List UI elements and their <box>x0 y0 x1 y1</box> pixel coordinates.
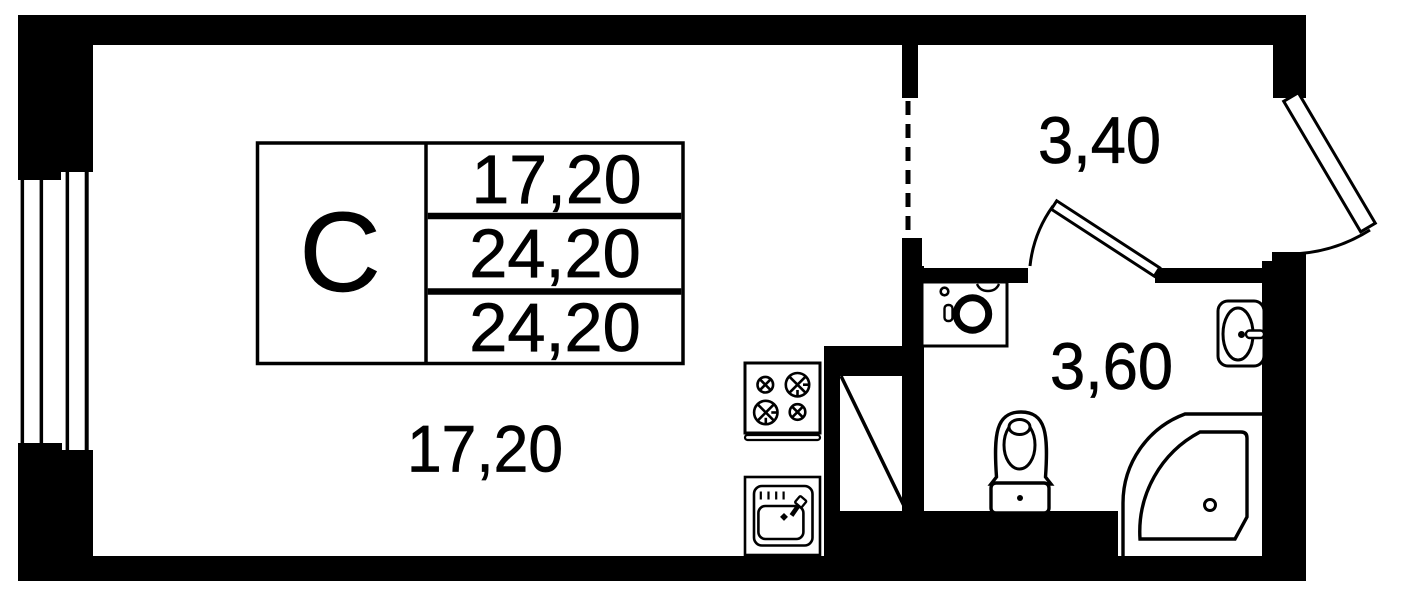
svg-text:3,60: 3,60 <box>1050 329 1173 403</box>
svg-text:17,20: 17,20 <box>407 412 563 486</box>
svg-text:24,20: 24,20 <box>469 289 641 366</box>
svg-text:24,20: 24,20 <box>469 215 641 292</box>
svg-text:С: С <box>299 189 381 315</box>
svg-text:17,20: 17,20 <box>472 141 642 218</box>
svg-text:3,40: 3,40 <box>1038 103 1161 177</box>
